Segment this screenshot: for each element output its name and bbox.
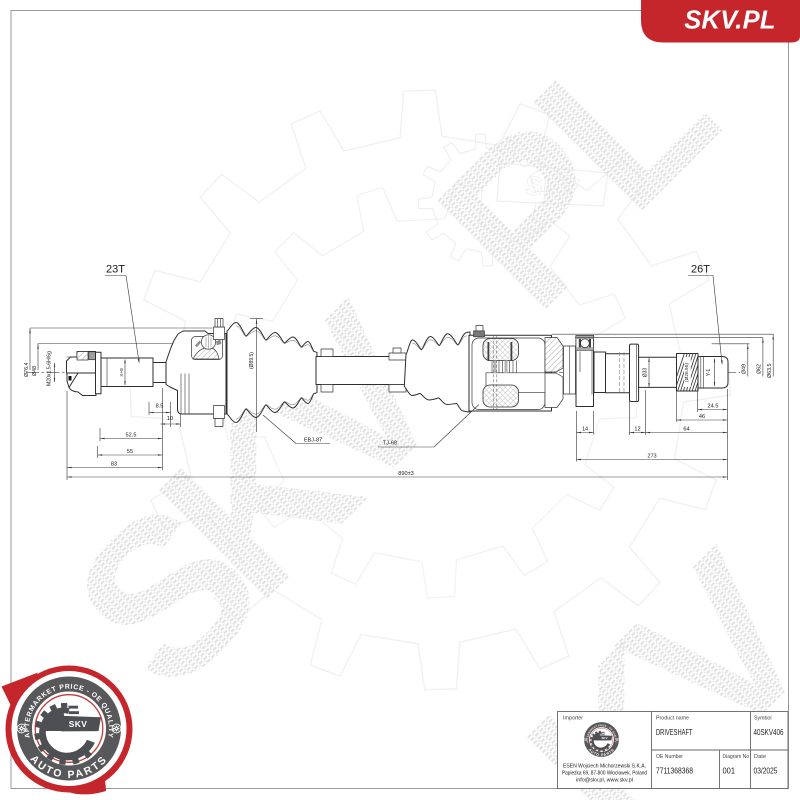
svg-text:Diagram No: Diagram No — [723, 754, 750, 760]
svg-text:(Ø26.95): (Ø26.95) — [684, 363, 690, 382]
svg-text:14: 14 — [582, 427, 588, 433]
svg-text:7711368368: 7711368368 — [656, 767, 693, 776]
svg-text:23T: 23T — [106, 264, 125, 276]
svg-text:001: 001 — [723, 767, 736, 776]
svg-text:SKV.PL: SKV.PL — [684, 7, 776, 35]
svg-text:M20x1.5-6H/6g: M20x1.5-6H/6g — [47, 351, 53, 386]
svg-text:26T: 26T — [691, 264, 710, 276]
svg-text:03/2025: 03/2025 — [754, 767, 778, 776]
svg-text:SKV: SKV — [601, 736, 607, 740]
svg-text:Date: Date — [754, 754, 766, 760]
svg-text:Ø76.4: Ø76.4 — [24, 363, 30, 377]
svg-text:Ø49: Ø49 — [742, 364, 748, 374]
svg-text:273: 273 — [647, 454, 656, 460]
svg-text:Ø63.5: Ø63.5 — [767, 364, 773, 378]
svg-text:8.5: 8.5 — [156, 404, 164, 410]
svg-text:OE Number: OE Number — [656, 754, 683, 760]
svg-text:Ø48: Ø48 — [32, 366, 38, 376]
svg-text:Ø62: Ø62 — [757, 364, 763, 374]
svg-text:Ø33: Ø33 — [643, 368, 649, 378]
svg-text:24.5: 24.5 — [708, 404, 719, 410]
svg-text:DRIVESHAFT: DRIVESHAFT — [656, 728, 693, 737]
svg-text:52.5: 52.5 — [126, 433, 137, 439]
svg-text:Importer: Importer — [563, 716, 583, 722]
svg-text:SKV: SKV — [69, 719, 87, 729]
svg-text:46: 46 — [699, 414, 705, 420]
svg-text:55: 55 — [127, 449, 133, 455]
svg-text:10: 10 — [167, 416, 173, 422]
svg-text:40SKV406: 40SKV406 — [754, 728, 784, 737]
svg-text:Product name: Product name — [656, 716, 689, 722]
svg-text:X+8: X+8 — [119, 368, 124, 377]
svg-text:Papieżka 69, 87-800 Włocławek,: Papieżka 69, 87-800 Włocławek, Poland — [562, 771, 647, 777]
svg-text:TJ-68: TJ-68 — [383, 441, 397, 447]
svg-text:ESEN Wojciech Michorzewski S.K: ESEN Wojciech Michorzewski S.K.A. — [563, 764, 646, 770]
svg-text:64: 64 — [683, 427, 689, 433]
svg-text:EBJ-87: EBJ-87 — [304, 438, 322, 444]
svg-text:83: 83 — [111, 462, 117, 468]
svg-text:890±3: 890±3 — [398, 471, 414, 477]
svg-text:info@skv.pl, www.skv.pl: info@skv.pl, www.skv.pl — [576, 778, 633, 784]
svg-text:Y-1: Y-1 — [706, 369, 712, 377]
svg-text:Symbol: Symbol — [754, 716, 772, 722]
svg-text:(Ø89.5): (Ø89.5) — [249, 352, 255, 369]
svg-text:12: 12 — [634, 427, 640, 433]
